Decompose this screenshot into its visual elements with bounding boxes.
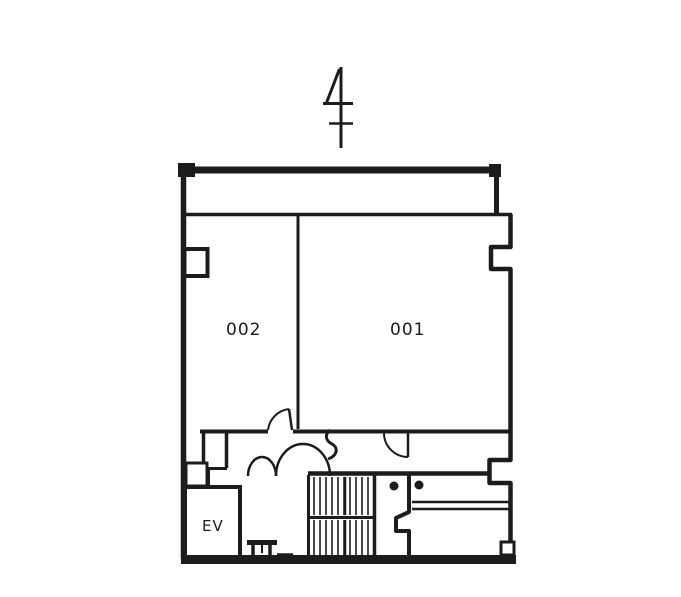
room-002-door-leaf [289, 409, 292, 430]
room-001-door-arc [384, 433, 408, 457]
room-002-door-arc [268, 409, 289, 430]
room-label-002: 002 [226, 320, 261, 340]
elevator-shaft: EV [185, 487, 240, 557]
right-wall-with-shaft-notches [490, 214, 511, 557]
elevator-label: EV [202, 517, 224, 535]
wall-corner-left [178, 163, 195, 177]
floorplan-drawing: EV 002 001 [0, 0, 681, 597]
room-label-001: 001 [390, 320, 425, 340]
stairs-treads-upper [314, 477, 368, 515]
hall-partition-curve [326, 430, 336, 459]
corner-shaft-box [501, 542, 514, 555]
hall-door-arc-small [248, 457, 276, 476]
meter-box [186, 463, 207, 486]
pipe-shaft-left [185, 249, 208, 276]
floorplan-canvas: EV 002 001 [0, 0, 681, 597]
north-arrow-icon [323, 67, 353, 148]
pipe-dot-left [390, 482, 399, 491]
pipe-dot-right [415, 481, 424, 490]
lower-right-double-wall [412, 502, 509, 509]
staircase [308, 473, 375, 557]
hall-door-arc-large [276, 444, 330, 476]
stairs-treads-lower [314, 520, 368, 555]
